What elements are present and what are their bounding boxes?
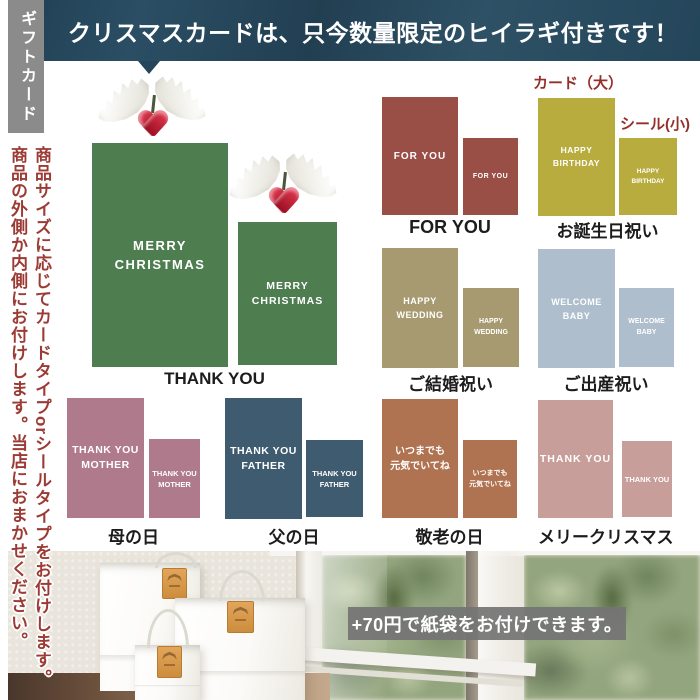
card-wedding-large: HAPPY WEDDING	[382, 248, 458, 368]
paper-bag-small	[135, 645, 200, 700]
card-wedding-small: HAPPY WEDDING	[463, 288, 519, 367]
card-merry-small: THANK YOU	[622, 441, 672, 517]
card-keirou-large: いつまでも 元気でいてね	[382, 399, 458, 518]
paper-bag-photo: +70円で紙袋をお付けできます。	[0, 551, 700, 700]
banner-text: クリスマスカードは、只今数量限定のヒイラギ付きです！	[22, 14, 678, 48]
holly-icon	[228, 150, 338, 222]
side-note-line-1: 商品サイズに応じてカードタイプorシールタイプをお付けします。	[29, 146, 53, 700]
bag-tag-icon	[227, 601, 254, 633]
caption-wedding: ご結婚祝い	[382, 370, 519, 395]
card-christmas-small: MERRY CHRISTMAS	[238, 222, 337, 365]
gift-card-promo-image: クリスマスカードは、只今数量限定のヒイラギ付きです！ ギフトカード 商品サイズに…	[0, 0, 700, 700]
gift-card-tab: ギフトカード	[8, 0, 44, 133]
card-foryou-small: FOR YOU	[463, 138, 518, 215]
caption-christmas: THANK YOU	[92, 369, 337, 389]
caption-keirou: 敬老の日	[382, 523, 517, 548]
card-merry-large: THANK YOU	[538, 400, 613, 518]
card-baby-large: WELCOME BABY	[538, 249, 615, 368]
legend-seal-small: シール(小)	[615, 113, 695, 134]
down-arrow-pointer-icon	[138, 61, 160, 74]
card-mother-large: THANK YOU MOTHER	[67, 398, 144, 518]
card-christmas-large: MERRY CHRISTMAS	[92, 143, 228, 367]
top-banner: クリスマスカードは、只今数量限定のヒイラギ付きです！	[0, 0, 700, 61]
gift-card-tab-label: ギフトカード	[14, 10, 38, 124]
card-foryou-large: FOR YOU	[382, 97, 458, 215]
holly-berry-heart-icon	[138, 111, 168, 141]
card-birthday-small: HAPPY BIRTHDAY	[619, 138, 677, 215]
caption-merry: メリークリスマス	[538, 523, 672, 548]
card-father-large: THANK YOU FATHER	[225, 398, 302, 519]
caption-mother: 母の日	[67, 523, 200, 548]
bag-tag-icon	[162, 568, 187, 599]
paper-bag-price-badge: +70円で紙袋をお付けできます。	[348, 607, 626, 640]
card-baby-small: WELCOME BABY	[619, 288, 674, 367]
caption-father: 父の日	[225, 523, 363, 548]
card-father-small: THANK YOU FATHER	[306, 440, 363, 517]
side-note-line-2: 商品の外側か内側にお付けします。当店におまかせください。	[5, 146, 29, 700]
caption-foryou: FOR YOU	[382, 217, 518, 238]
legend-card-large: カード（大）	[533, 72, 621, 93]
holly-icon	[97, 73, 209, 145]
card-birthday-large: HAPPY BIRTHDAY	[538, 98, 615, 216]
side-note-vertical-text: 商品サイズに応じてカードタイプorシールタイプをお付けします。 商品の外側か内側…	[5, 146, 53, 700]
card-keirou-small: いつまでも 元気でいてね	[463, 440, 517, 518]
card-mother-small: THANK YOU MOTHER	[149, 439, 200, 518]
caption-baby: ご出産祝い	[538, 370, 674, 395]
bag-tag-icon	[157, 646, 182, 678]
caption-birthday: お誕生日祝い	[538, 217, 677, 242]
holly-berry-heart-icon	[269, 188, 299, 218]
